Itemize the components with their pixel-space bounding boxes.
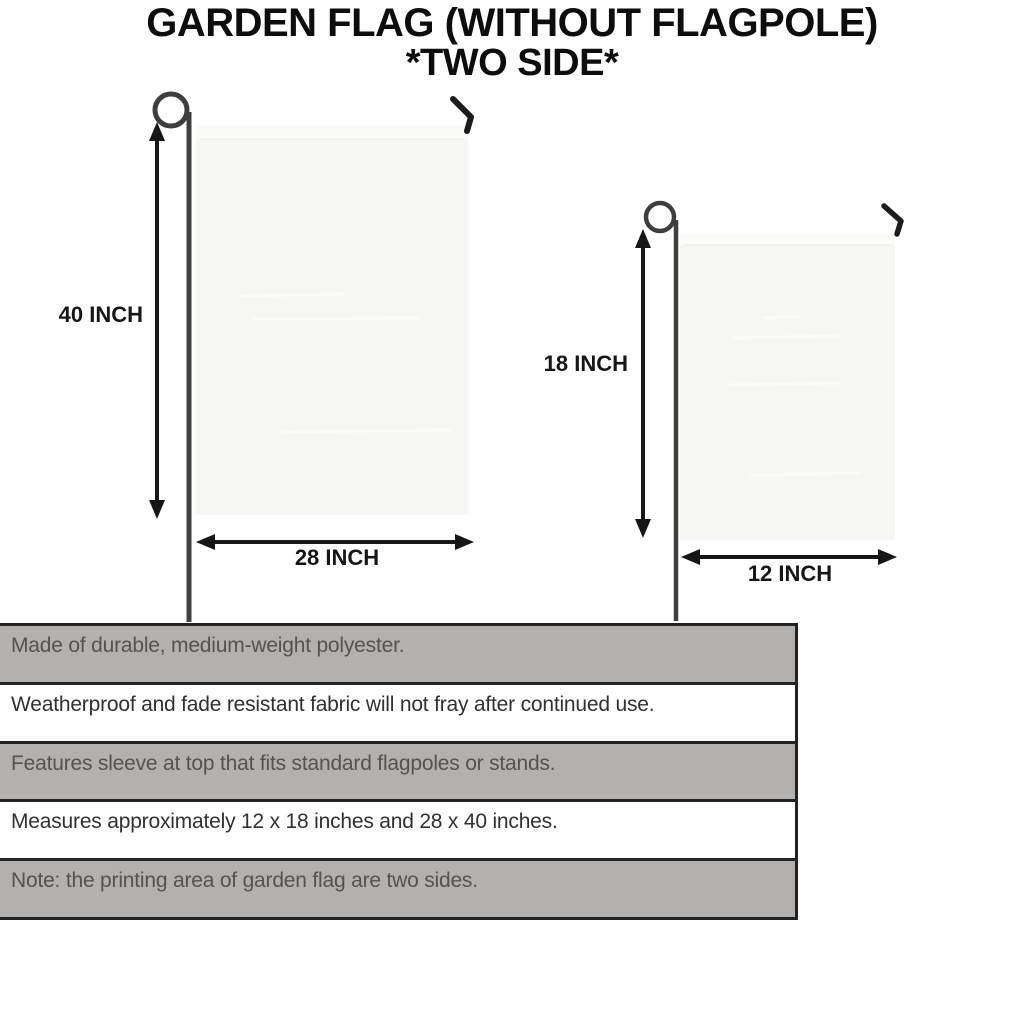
small-flagpole-loop <box>646 203 674 231</box>
feature-row: Made of durable, medium-weight polyester… <box>0 626 795 682</box>
large-flag-height-label: 40 INCH <box>36 302 143 328</box>
large-flag-group <box>149 94 474 622</box>
feature-text: Note: the printing area of garden flag a… <box>11 869 478 892</box>
large-flag-sleeve <box>196 125 468 139</box>
feature-text: Features sleeve at top that fits standar… <box>11 752 555 775</box>
feature-text: Measures approximately 12 x 18 inches an… <box>11 810 558 833</box>
feature-text: Weatherproof and fade resistant fabric w… <box>11 693 654 716</box>
small-height-arrow <box>635 229 651 538</box>
large-flagpole-loop <box>155 94 187 126</box>
small-flag-width-label: 12 INCH <box>682 561 898 587</box>
product-infographic: GARDEN FLAG (WITHOUT FLAGPOLE) *TWO SIDE… <box>0 0 1024 1024</box>
large-height-arrow <box>149 122 165 519</box>
feature-row: Weatherproof and fade resistant fabric w… <box>0 682 795 741</box>
small-flag-height-label: 18 INCH <box>521 351 628 377</box>
feature-row: Features sleeve at top that fits standar… <box>0 741 795 800</box>
small-flag-group <box>635 203 901 621</box>
small-flag-hook-icon <box>884 206 901 234</box>
small-flag-fabric <box>680 233 895 540</box>
feature-list: Made of durable, medium-weight polyester… <box>0 623 798 920</box>
large-flag-width-label: 28 INCH <box>202 545 472 571</box>
feature-row: Note: the printing area of garden flag a… <box>0 858 795 917</box>
feature-text: Made of durable, medium-weight polyester… <box>11 634 404 657</box>
small-flag-sleeve <box>680 233 895 245</box>
feature-row: Measures approximately 12 x 18 inches an… <box>0 799 795 858</box>
